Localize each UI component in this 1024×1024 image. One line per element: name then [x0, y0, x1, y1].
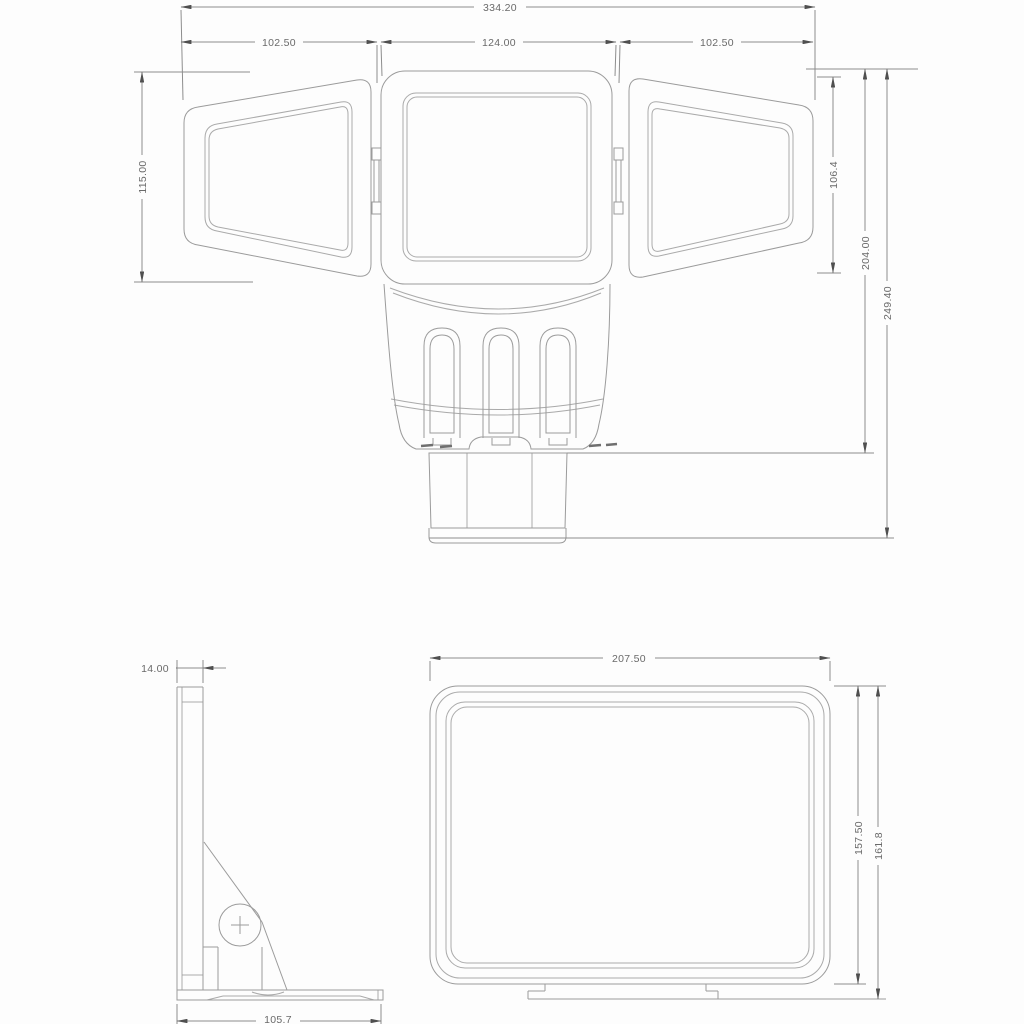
- head-face-view: 207.50 157.50 161.8: [430, 652, 886, 999]
- right-head-bezel-inner: [652, 109, 789, 252]
- vent-slot: [483, 328, 519, 445]
- left-lamp-head: [184, 80, 371, 277]
- dim-base-depth: 105.7: [264, 1014, 292, 1024]
- front-dimensions: 334.20 102.50 124.00 102.50 115.00 106.4…: [134, 1, 918, 538]
- left-head-bezel-outer: [205, 102, 352, 258]
- front-view: 334.20 102.50 124.00 102.50 115.00 106.4…: [134, 1, 918, 543]
- center-head-bezel-outer: [403, 93, 591, 261]
- head-face-dimensions: 207.50 157.50 161.8: [430, 652, 886, 999]
- right-hinge: [614, 148, 623, 214]
- dim-left-head-width: 102.50: [262, 37, 296, 49]
- right-head-bezel-outer: [648, 102, 793, 257]
- motion-sensor: [429, 453, 567, 543]
- center-head-outline: [381, 71, 612, 284]
- body-top-arc-inner: [393, 293, 601, 314]
- dim-head-height: 157.50: [853, 821, 865, 855]
- sensor-lip: [429, 528, 566, 543]
- dim-head-height-with-bracket: 161.8: [873, 832, 885, 860]
- left-hinge: [372, 148, 381, 214]
- center-head-bezel-inner: [407, 97, 587, 257]
- body-top-arc-outer: [390, 288, 604, 309]
- mount-plate: [177, 687, 203, 990]
- phillips-screw-icon: [231, 916, 249, 934]
- bracket-base: [177, 990, 383, 1000]
- sensor-body: [429, 453, 567, 528]
- pivot-bracket: [203, 842, 287, 990]
- dim-center-head-width: 124.00: [482, 37, 516, 49]
- dim-body-height: 204.00: [860, 236, 872, 270]
- dim-right-head-width: 102.50: [700, 37, 734, 49]
- center-lamp-head: [381, 71, 612, 284]
- right-lamp-head: [629, 79, 813, 278]
- lamp-body: [384, 284, 617, 449]
- vent-slot: [540, 328, 576, 445]
- left-head-bezel-inner: [209, 107, 348, 251]
- dim-head-width: 207.50: [612, 653, 646, 665]
- dim-right-head-height: 106.4: [828, 161, 840, 189]
- body-bottom-arc-outer: [391, 399, 603, 410]
- mount-tab: [528, 984, 886, 999]
- dim-overall-height: 249.40: [882, 286, 894, 320]
- technical-drawing-page: 334.20 102.50 124.00 102.50 115.00 106.4…: [0, 0, 1024, 1024]
- dim-left-head-height: 115.00: [137, 160, 149, 193]
- left-head-outline: [184, 80, 371, 277]
- head-face-outline: [430, 686, 830, 984]
- dim-plate-thickness: 14.00: [141, 663, 169, 675]
- body-bottom-arc-inner: [394, 405, 600, 415]
- vent-slot: [424, 328, 460, 445]
- drawing-canvas: 334.20 102.50 124.00 102.50 115.00 106.4…: [0, 0, 1024, 1024]
- side-dimensions: 14.00 105.7: [133, 660, 381, 1024]
- side-view: 14.00 105.7: [133, 660, 383, 1024]
- dim-overall-width: 334.20: [483, 2, 517, 14]
